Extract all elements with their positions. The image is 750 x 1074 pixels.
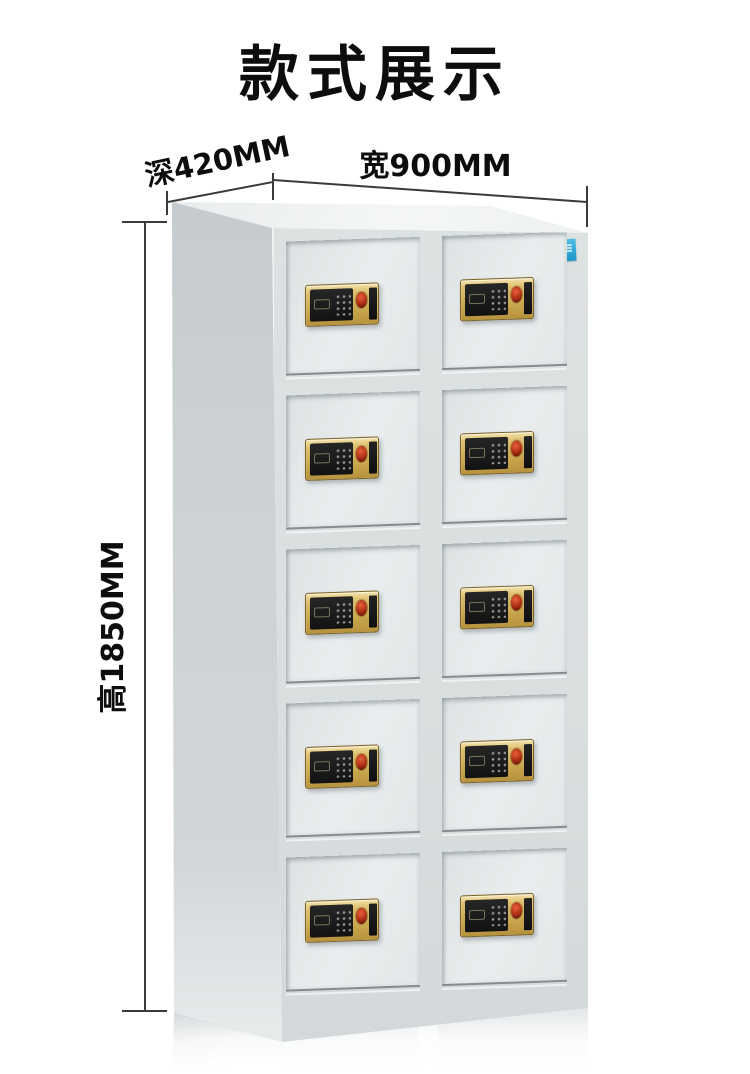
lock-keypad-panel [310,904,353,938]
fingerprint-reader-icon [356,908,367,924]
lock-keypad-panel [465,899,508,933]
locker-door [442,386,567,524]
fingerprint-reader-icon [356,446,367,462]
fingerprint-reader-icon [356,754,367,770]
lock-display-window [314,607,330,618]
locker-door [286,545,420,684]
lock-cover-panel [369,287,377,319]
lock-keypad [489,595,506,619]
fingerprint-reader-icon [511,902,522,918]
depth-dimension-tick-right [272,173,274,200]
lock-cover-panel [369,903,377,935]
fingerprint-reader-icon [511,440,522,456]
lock-cover-panel [369,749,377,781]
lock-keypad [489,749,506,773]
cabinet-side-face [172,200,284,1042]
lock-display-window [469,756,485,767]
locker-door [286,699,420,838]
lock-display-window [469,448,485,459]
lock-keypad-panel [310,596,353,630]
lock-keypad [334,292,351,316]
lock-keypad [334,754,351,778]
lock-keypad-panel [310,442,353,476]
locker-door [442,232,567,370]
electronic-lock [460,277,534,322]
lock-display-window [314,299,330,310]
depth-dimension-tick-left [166,191,168,215]
lock-keypad-panel [310,750,353,784]
electronic-lock [305,436,379,481]
electronic-lock [305,282,379,327]
fingerprint-reader-icon [511,286,522,302]
electronic-lock [460,585,534,630]
locker-door [286,391,420,530]
lock-cover-panel [369,441,377,473]
lock-cover-panel [524,282,532,314]
lock-keypad-panel [465,745,508,779]
lock-keypad [334,446,351,470]
product-showcase: 款式展示 深420MM 宽900MM 高1850MM [0,0,750,1074]
electronic-lock [460,739,534,784]
lock-keypad [334,908,351,932]
cabinet-front-face [272,228,588,1042]
lock-display-window [469,602,485,613]
locker-door [286,237,420,376]
height-dimension-label: 高1850MM [88,502,132,752]
fingerprint-reader-icon [511,594,522,610]
lock-display-window [314,761,330,772]
lock-display-window [469,910,485,921]
lock-display-window [469,294,485,305]
lock-cover-panel [524,590,532,622]
electronic-lock [305,744,379,789]
electronic-lock [305,898,379,943]
fingerprint-reader-icon [356,292,367,308]
fingerprint-reader-icon [511,748,522,764]
lock-cover-panel [369,595,377,627]
lock-cover-panel [524,898,532,930]
height-dimension-line [144,222,146,1012]
lock-display-window [314,453,330,464]
lock-cover-panel [524,744,532,776]
locker-cabinet [172,200,588,1042]
lock-display-window [314,915,330,926]
page-title: 款式展示 [0,26,750,113]
lock-keypad [489,903,506,927]
lock-keypad [489,441,506,465]
width-dimension-label: 宽900MM [348,141,523,185]
fingerprint-reader-icon [356,600,367,616]
locker-door [286,853,420,992]
locker-door [442,848,567,986]
lock-keypad-panel [465,283,508,317]
lock-keypad-panel [310,288,353,322]
locker-door [442,694,567,832]
lock-keypad [334,600,351,624]
electronic-lock [460,893,534,938]
lock-keypad-panel [465,437,508,471]
locker-door [442,540,567,678]
height-dimension-tick-bottom [122,1010,167,1012]
lock-keypad [489,287,506,311]
locker-grid [274,217,590,1042]
depth-dimension-label: 深420MM [129,121,304,197]
electronic-lock [460,431,534,476]
lock-keypad-panel [465,591,508,625]
height-dimension-tick-top [122,221,167,223]
lock-cover-panel [524,436,532,468]
electronic-lock [305,590,379,635]
